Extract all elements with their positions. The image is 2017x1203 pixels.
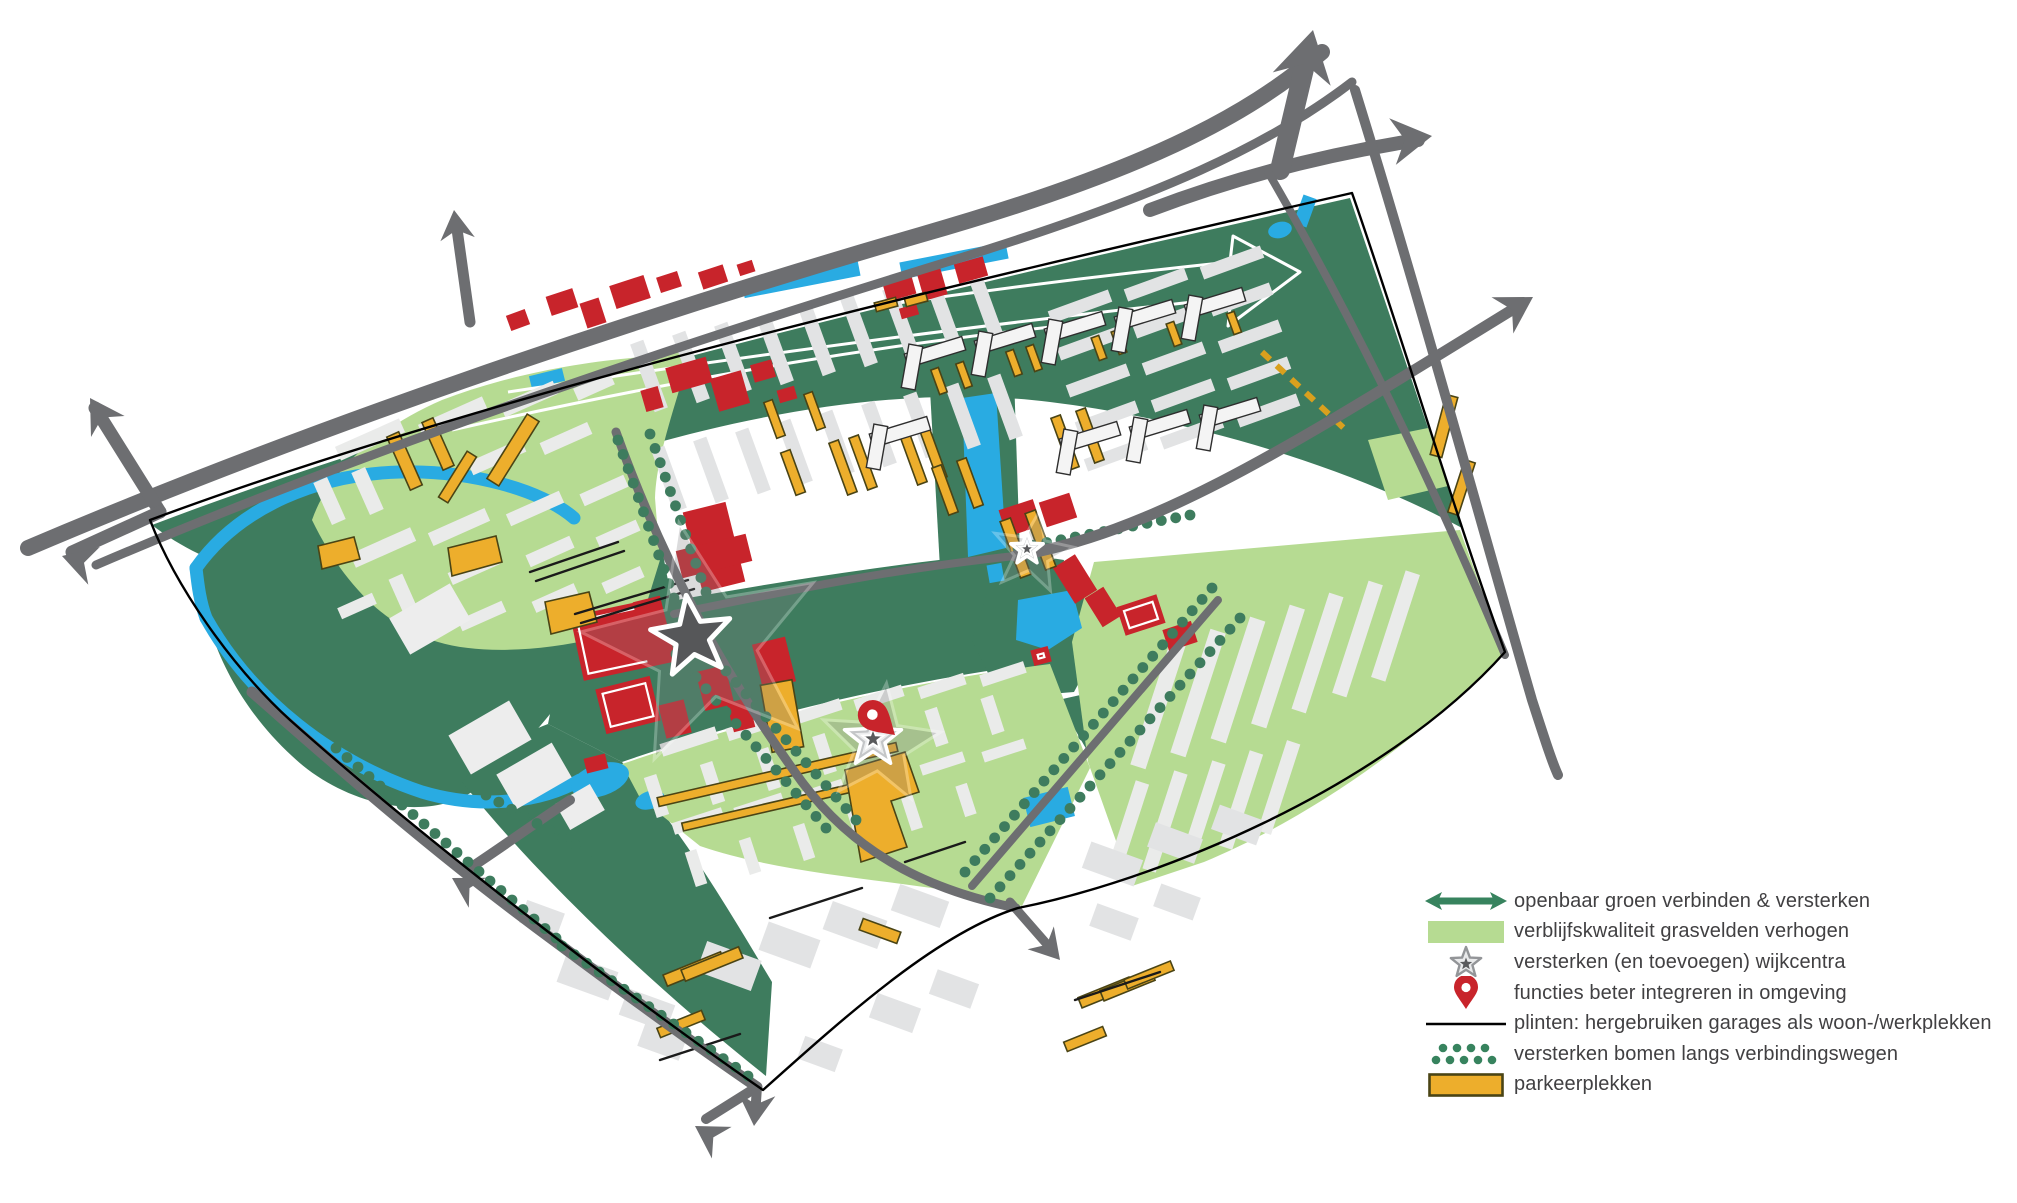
legend-row: openbaar groen verbinden & versterken [1418,886,2017,917]
parking-swatch-icon [1418,1073,1514,1097]
legend-row: versterken (en toevoegen) wijkcentra [1418,947,2017,978]
legend: openbaar groen verbinden & versterken ve… [1418,886,2017,1100]
plint-line-icon [1418,1021,1514,1027]
legend-label: versterken bomen langs verbindingswegen [1514,1043,1898,1066]
legend-label: openbaar groen verbinden & versterken [1514,890,1870,913]
legend-row: verblijfskwaliteit grasvelden verhogen [1418,917,2017,948]
legend-row: functies beter integreren in omgeving [1418,978,2017,1009]
legend-label: parkeerplekken [1514,1073,1652,1096]
urban-plan-figure: openbaar groen verbinden & versterken ve… [0,0,2017,1203]
grass-swatch-icon [1418,921,1514,943]
red-pin-icon [1418,976,1514,1010]
wijkcentra-star-icon [1418,944,1514,980]
legend-row: parkeerplekken [1418,1070,2017,1101]
legend-label: plinten: hergebruiken garages als woon-/… [1514,1012,1992,1035]
legend-label: versterken (en toevoegen) wijkcentra [1514,951,1846,974]
legend-label: verblijfskwaliteit grasvelden verhogen [1514,920,1849,943]
double-arrow-icon [1418,890,1514,912]
legend-row: versterken bomen langs verbindingswegen [1418,1039,2017,1070]
legend-label: functies beter integreren in omgeving [1514,982,1847,1005]
tree-dots-icon [1418,1041,1514,1067]
legend-row: plinten: hergebruiken garages als woon-/… [1418,1008,2017,1039]
